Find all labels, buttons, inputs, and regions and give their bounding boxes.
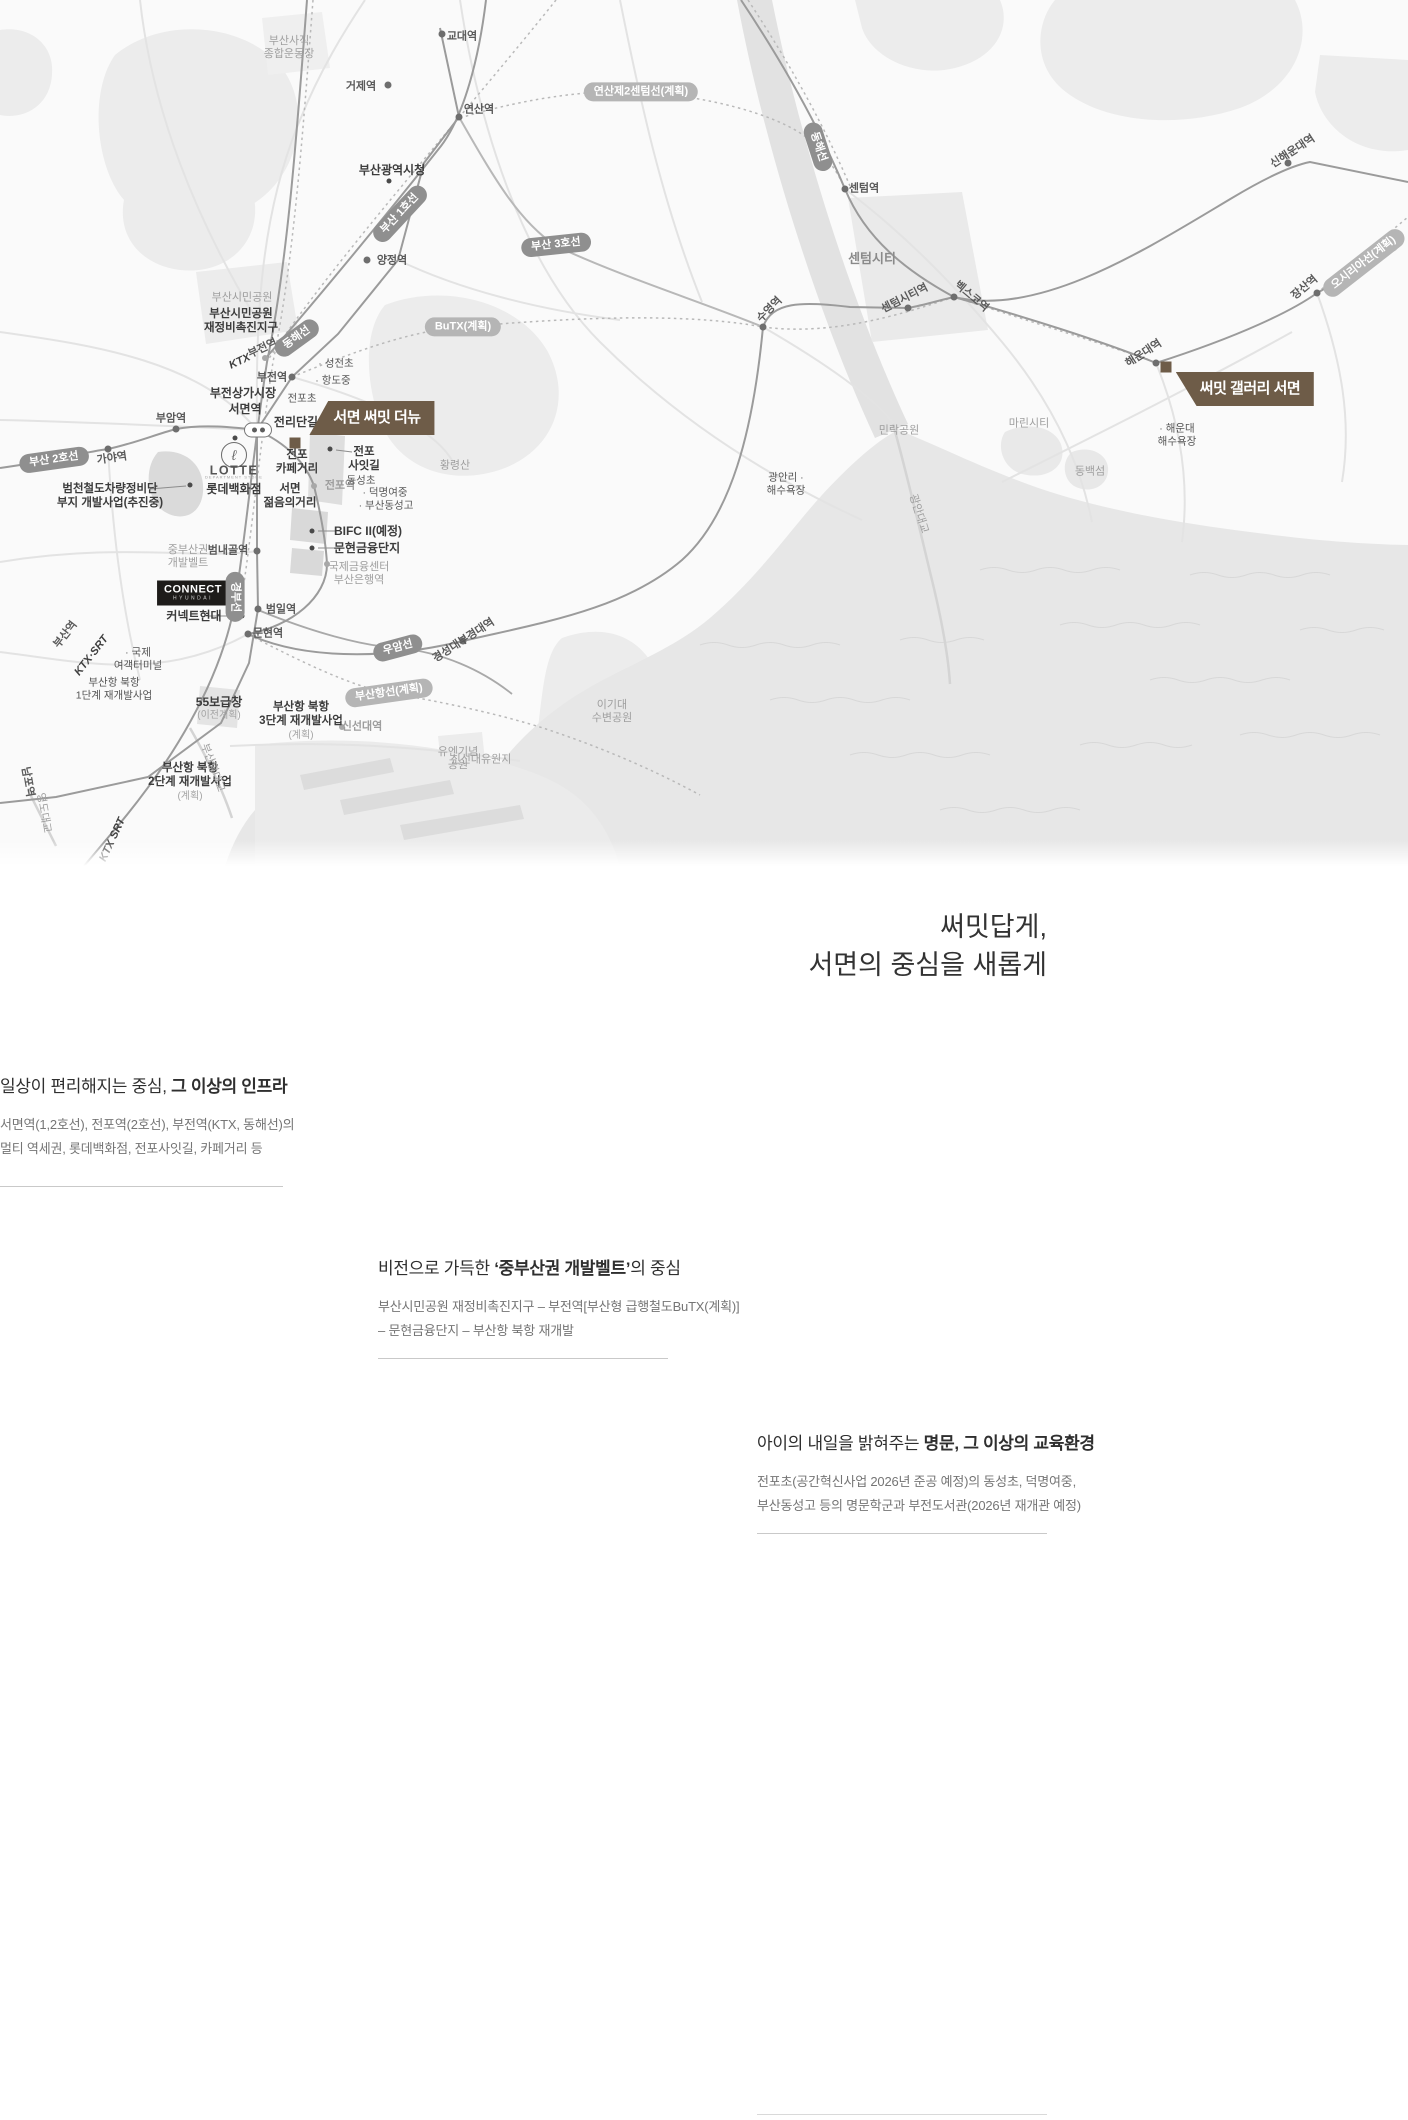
map-label: 범천철도차량정비단 부지 개발사업(추진중) [57,483,163,511]
feature-body-line1: 전포초(공간혁신사업 2026년 준공 예정)의 동성초, 덕명여중, [757,1474,1076,1489]
project-flag-badge: 서면 써밋 더뉴 [309,401,434,435]
feature-body-line2: 부산동성고 등의 명문학군과 부전도서관(2026년 재개관 예정) [757,1498,1081,1513]
map-label: 부산항 북항 3단계 재개발사업 [259,701,343,729]
headline-line2: 서면의 중심을 새롭게 [808,946,1047,984]
map-label: 국제금융센터 부산은행역 [329,561,390,587]
feature-body-line2: – 문현금융단지 – 부산항 북항 재개발 [378,1323,574,1338]
map-label: 민락공원 [879,424,919,437]
feature-body: 전포초(공간혁신사업 2026년 준공 예정)의 동성초, 덕명여중,부산동성고… [757,1470,1177,1518]
station-dot [289,374,296,381]
map-label: 부전역 [257,371,287,384]
map-label: 동백섬 [1075,465,1105,478]
map-label: 전포 카페거리 [276,449,318,477]
poi-dot [310,546,315,551]
map-label: 동성초 [347,475,376,488]
headline-line1: 써밋답게, [808,908,1047,946]
feature-title: 일상이 편리해지는 중심, 그 이상의 인프라 [0,1072,420,1097]
map-label: 문현역 [253,627,283,640]
bottom-divider [757,2114,1047,2115]
map-label: · 성전초 [318,358,353,371]
planned-line-badge: BuTX(계획) [425,317,501,336]
map-label: 55보급창 [196,695,242,709]
feature-education: 아이의 내일을 밝혀주는 명문, 그 이상의 교육환경 전포초(공간혁신사업 2… [757,1429,1177,1518]
map-label: · 국제 여객터미널 [114,646,162,671]
feature-body: 부산시민공원 재정비촉진지구 – 부전역[부산형 급행철도BuTX(계획)]– … [378,1295,798,1343]
map-label: · 덕명여중 [362,487,407,500]
transfer-station-icon [244,423,272,438]
map-label: 부산시민공원 재정비촉진지구 [204,308,278,336]
map-label: 전포초 [288,393,317,406]
station-dot [245,631,252,638]
map-label: 신선대유원지 [451,753,512,766]
map-label: 신선대역 [342,720,382,733]
map-label: 롯데백화점 [206,482,261,496]
feature-title: 비전으로 가득한 ‘중부산권 개발벨트’의 중심 [378,1254,798,1279]
location-map: 부산사직 종합운동장교대역거제역연산역연산제2센텀선(계획)부산광역시청부산 1… [0,0,1408,866]
map-label: (계획) [177,791,202,803]
map-label: 양정역 [377,254,407,267]
poi-dot [188,483,193,488]
map-label: 전리단길 [274,415,318,429]
map-label: 커넥트현대 [166,609,221,623]
station-dot [456,114,463,121]
poi-dot [328,447,333,452]
map-label: 부암역 [156,412,186,425]
map-label: 범내골역 [208,544,248,557]
feature-body-line1: 부산시민공원 재정비촉진지구 – 부전역[부산형 급행철도BuTX(계획)] [378,1299,739,1314]
map-label: 부산광역시청 [359,163,425,177]
map-label: 이기대 수변공원 [592,699,632,725]
feature-title-normal: 아이의 내일을 밝혀주는 [757,1434,924,1453]
line-badge: 경부선 [225,572,244,622]
project-site-marker [1161,362,1172,373]
station-dot [842,186,849,193]
map-label: 중부산권 개발벨트 [168,544,208,570]
project-site-marker [290,438,301,449]
connect-hyundai-logo: CONNECTHYUNDAI [157,581,229,606]
planned-line-badge: 연산제2센텀선(계획) [584,82,698,101]
map-label: 서면 젊음의거리 [264,483,317,511]
gallery-flag-badge: 써밋 갤러리 서면 [1176,372,1314,406]
station-dot [385,82,392,89]
feature-title-normal: 비전으로 가득한 [378,1259,494,1278]
station-dot [364,257,371,264]
map-label: 부전상가시장 [210,386,276,400]
station-dot [1153,360,1160,367]
map-label: · 해운대 해수욕장 [1158,422,1197,447]
map-label: 범일역 [266,603,296,616]
station-dot [1314,290,1321,297]
map-label: 문현금융단지 [334,541,400,555]
map-label: 센텀시티 [848,251,896,267]
feature-divider-1 [0,1186,283,1187]
station-dot [439,31,446,38]
feature-divider-2 [378,1358,668,1359]
feature-title-bold: 명문, 그 이상의 교육환경 [924,1434,1095,1453]
station-dot [173,426,180,433]
feature-body-line1: 서면역(1,2호선), 전포역(2호선), 부전역(KTX, 동해선)의 [0,1117,294,1132]
lotte-wordmark-sub: DEPARTMENT STORE [205,476,263,481]
map-label: 전포 사잇길 [348,446,380,474]
feature-body: 서면역(1,2호선), 전포역(2호선), 부전역(KTX, 동해선)의멀티 역… [0,1113,420,1161]
section-headline: 써밋답게, 서면의 중심을 새롭게 [808,908,1047,984]
map-label: 교대역 [447,30,477,43]
map-label: BIFC II(예정) [334,524,402,538]
feature-infra: 일상이 편리해지는 중심, 그 이상의 인프라 서면역(1,2호선), 전포역(… [0,1072,420,1161]
map-label: (계획) [288,730,313,742]
feature-title-normal: 일상이 편리해지는 중심, [0,1077,171,1096]
poi-dot [310,529,315,534]
poi-dot [233,436,238,441]
map-label: 거제역 [346,80,376,93]
map-label: 광안리 · 해수욕장 [767,471,806,496]
map-label: · 부산동성고 [359,500,414,513]
map-label: 부산항 북항 1단계 재개발사업 [76,676,152,701]
station-dot [254,548,261,555]
map-label: 서면역 [228,402,261,416]
station-dot [255,606,262,613]
feature-title-bold: 그 이상의 인프라 [171,1077,287,1096]
station-dot [951,294,958,301]
map-label: 연산역 [464,103,494,116]
feature-title-tail: 의 중심 [630,1259,680,1278]
map-label: · 항도중 [315,375,350,388]
map-label: 부산시민공원 [212,291,273,304]
feature-divider-3 [757,1533,1047,1534]
map-label: (이전계획) [197,710,240,722]
feature-title: 아이의 내일을 밝혀주는 명문, 그 이상의 교육환경 [757,1429,1177,1454]
map-label: 황령산 [440,459,470,472]
feature-development-belt: 비전으로 가득한 ‘중부산권 개발벨트’의 중심 부산시민공원 재정비촉진지구 … [378,1254,798,1343]
poi-dot [387,179,392,184]
map-label: 부산사직 종합운동장 [264,35,315,61]
feature-title-bold: ‘중부산권 개발벨트’ [494,1259,630,1278]
feature-body-line2: 멀티 역세권, 롯데백화점, 전포사잇길, 카페거리 등 [0,1141,263,1156]
map-base [0,0,1408,866]
map-label: 마린시티 [1009,417,1049,430]
map-label: 센텀역 [849,182,879,195]
